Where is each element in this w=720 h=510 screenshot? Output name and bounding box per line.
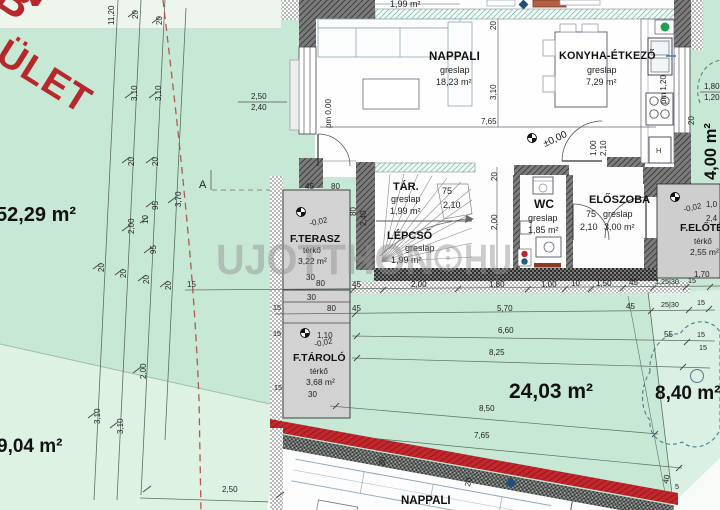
svg-text:2,40: 2,40 bbox=[359, 210, 368, 226]
svg-text:2,4: 2,4 bbox=[706, 214, 718, 223]
svg-text:15: 15 bbox=[697, 330, 705, 339]
svg-text:1,0: 1,0 bbox=[706, 200, 718, 209]
svg-text:20: 20 bbox=[119, 269, 128, 278]
svg-text:5,70: 5,70 bbox=[497, 304, 513, 313]
svg-text:HU: HU bbox=[464, 236, 512, 284]
svg-text:11,20: 11,20 bbox=[107, 5, 116, 25]
svg-text:80: 80 bbox=[327, 304, 336, 313]
svg-text:greslap: greslap bbox=[587, 65, 617, 75]
svg-text:18,23 m²: 18,23 m² bbox=[436, 77, 472, 87]
svg-text:2,50: 2,50 bbox=[222, 485, 238, 494]
svg-text:UJOTTHON: UJOTTHON bbox=[216, 236, 434, 284]
svg-text:2,10: 2,10 bbox=[580, 222, 598, 232]
svg-text:3,68 m²: 3,68 m² bbox=[306, 377, 335, 387]
svg-text:1,99 m²: 1,99 m² bbox=[390, 206, 421, 216]
svg-text:45: 45 bbox=[626, 302, 635, 311]
svg-text:térkő: térkő bbox=[310, 367, 328, 376]
svg-text:greslap: greslap bbox=[603, 209, 633, 219]
svg-text:2,00: 2,00 bbox=[490, 214, 499, 230]
svg-text:3,70: 3,70 bbox=[174, 191, 183, 207]
svg-text:15: 15 bbox=[697, 298, 705, 307]
svg-text:2,00: 2,00 bbox=[139, 363, 148, 379]
svg-text:TÁR.: TÁR. bbox=[393, 180, 419, 193]
svg-text:NAPPALI: NAPPALI bbox=[429, 51, 480, 63]
svg-text:5: 5 bbox=[675, 482, 679, 491]
svg-text:greslap: greslap bbox=[440, 65, 470, 75]
svg-text:75: 75 bbox=[442, 186, 452, 196]
svg-text:80: 80 bbox=[349, 207, 358, 216]
svg-text:20: 20 bbox=[489, 21, 498, 30]
svg-text:2,10: 2,10 bbox=[599, 140, 608, 156]
svg-text:55: 55 bbox=[664, 330, 673, 339]
svg-text:30: 30 bbox=[307, 293, 316, 302]
svg-text:80: 80 bbox=[331, 182, 340, 191]
svg-text:45: 45 bbox=[305, 182, 314, 191]
svg-text:10: 10 bbox=[571, 279, 580, 288]
svg-text:NAPPALI: NAPPALI bbox=[401, 495, 451, 507]
svg-text:1,80: 1,80 bbox=[704, 82, 720, 91]
svg-text:A: A bbox=[199, 179, 207, 191]
svg-text:20: 20 bbox=[97, 263, 106, 272]
svg-text:F.TÁROLÓ: F.TÁROLÓ bbox=[293, 351, 346, 364]
svg-text:2,50: 2,50 bbox=[251, 92, 267, 101]
svg-text:2,55 m²: 2,55 m² bbox=[690, 247, 719, 257]
svg-text:20: 20 bbox=[490, 172, 499, 181]
svg-text:térkő: térkő bbox=[694, 237, 712, 246]
svg-text:8,50: 8,50 bbox=[479, 404, 495, 413]
svg-text:3,10: 3,10 bbox=[489, 84, 498, 100]
svg-text:3,10: 3,10 bbox=[93, 408, 102, 424]
svg-text:3,10: 3,10 bbox=[116, 418, 125, 434]
svg-text:1,50: 1,50 bbox=[596, 279, 612, 288]
svg-text:15: 15 bbox=[187, 280, 196, 289]
svg-text:15: 15 bbox=[274, 383, 282, 392]
svg-text:20: 20 bbox=[687, 116, 696, 125]
svg-text:H: H bbox=[656, 146, 661, 155]
svg-text:WC: WC bbox=[534, 197, 554, 211]
svg-text:1,99 m²: 1,99 m² bbox=[390, 0, 421, 9]
svg-text:greslap: greslap bbox=[528, 213, 558, 223]
svg-text:3,00 m²: 3,00 m² bbox=[604, 222, 635, 232]
svg-text:20: 20 bbox=[164, 281, 173, 290]
svg-text:24,03 m²: 24,03 m² bbox=[509, 380, 593, 403]
svg-text:25|30: 25|30 bbox=[661, 300, 679, 309]
svg-text:6,60: 6,60 bbox=[498, 326, 514, 335]
svg-text:15: 15 bbox=[699, 343, 707, 352]
svg-text:15: 15 bbox=[273, 329, 281, 338]
svg-text:1,85 m²: 1,85 m² bbox=[528, 225, 559, 235]
svg-text:30: 30 bbox=[308, 390, 317, 399]
svg-text:8,25: 8,25 bbox=[489, 348, 505, 357]
svg-text:95: 95 bbox=[149, 245, 158, 254]
svg-text:KONYHA-ÉTKEZŐ: KONYHA-ÉTKEZŐ bbox=[559, 49, 656, 62]
svg-text:greslap: greslap bbox=[391, 194, 421, 204]
svg-text:1,00: 1,00 bbox=[541, 280, 557, 289]
svg-text:20: 20 bbox=[142, 275, 151, 284]
svg-text:2,10: 2,10 bbox=[443, 200, 461, 210]
svg-text:9,04 m²: 9,04 m² bbox=[0, 436, 62, 457]
svg-text:1,00: 1,00 bbox=[589, 140, 598, 156]
svg-text:52,29 m²: 52,29 m² bbox=[0, 204, 76, 226]
svg-text:7,65: 7,65 bbox=[474, 431, 490, 440]
svg-text:1,20: 1,20 bbox=[704, 93, 720, 102]
svg-text:7,65: 7,65 bbox=[481, 117, 497, 126]
svg-text:7,29 m²: 7,29 m² bbox=[586, 77, 617, 87]
svg-text:ELŐSZOBA: ELŐSZOBA bbox=[589, 193, 650, 206]
svg-text:8,40 m²: 8,40 m² bbox=[655, 383, 720, 404]
svg-text:1,70: 1,70 bbox=[694, 270, 710, 279]
svg-text:45: 45 bbox=[629, 278, 638, 287]
svg-text:15: 15 bbox=[273, 303, 281, 312]
svg-text:75: 75 bbox=[586, 209, 596, 219]
svg-text:pm 0,00: pm 0,00 bbox=[324, 99, 333, 128]
svg-text:pm 1,20: pm 1,20 bbox=[659, 75, 668, 104]
svg-text:2,40: 2,40 bbox=[251, 103, 267, 112]
svg-text:1,25|30: 1,25|30 bbox=[655, 277, 679, 286]
svg-text:4,00 m²: 4,00 m² bbox=[702, 123, 720, 180]
